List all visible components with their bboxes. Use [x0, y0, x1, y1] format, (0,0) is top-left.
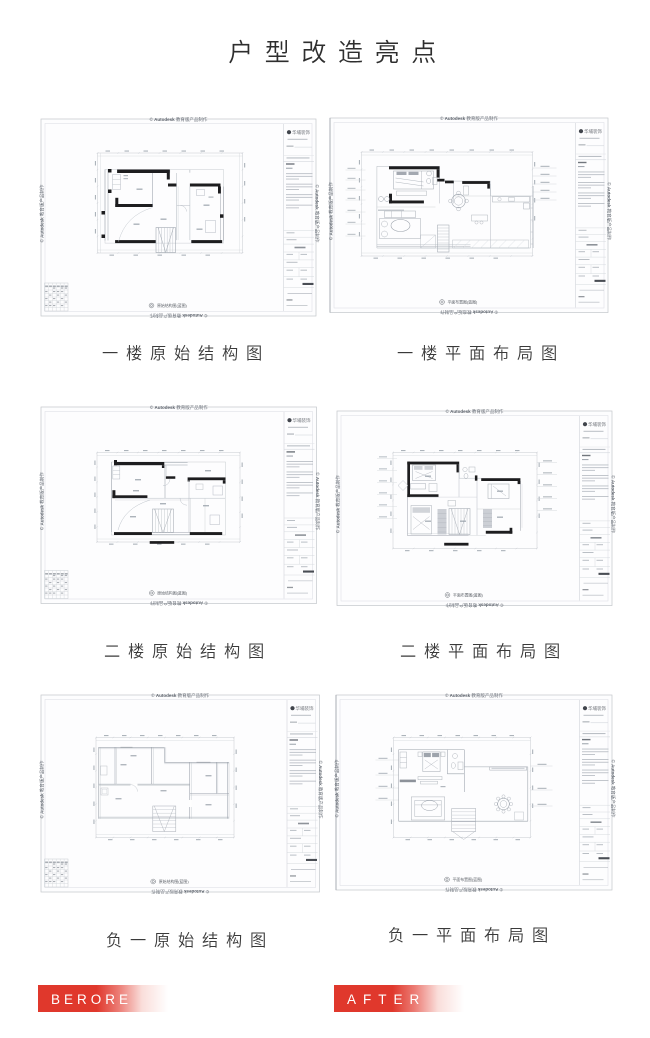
svg-text:© Autodesk 教育版产品制作: © Autodesk 教育版产品制作 [327, 182, 334, 240]
svg-text:© Autodesk 教育版产品制作: © Autodesk 教育版产品制作 [316, 761, 323, 819]
svg-text:华埔装饰: 华埔装饰 [584, 128, 602, 135]
svg-text:© Autodesk 教育版产品制作: © Autodesk 教育版产品制作 [440, 115, 498, 122]
svg-text:© Autodesk 教育版产品制作: © Autodesk 教育版产品制作 [38, 760, 45, 818]
svg-text:© Autodesk 教育版产品制作: © Autodesk 教育版产品制作 [150, 404, 208, 411]
svg-text:原始结构图(蓝图): 原始结构图(蓝图) [157, 590, 188, 596]
svg-text:© Autodesk 教育版产品制作: © Autodesk 教育版产品制作 [38, 184, 45, 242]
svg-text:平面布置图(蓝图): 平面布置图(蓝图) [453, 592, 484, 598]
svg-text:© Autodesk 教育版产品制作: © Autodesk 教育版产品制作 [609, 475, 616, 533]
svg-text:© Autodesk 教育版产品制作: © Autodesk 教育版产品制作 [151, 692, 209, 699]
svg-text:© Autodesk 教育版产品制作: © Autodesk 教育版产品制作 [313, 184, 320, 242]
svg-text:© Autodesk 教育版产品制作: © Autodesk 教育版产品制作 [335, 474, 342, 532]
svg-text:© Autodesk 教育版产品制作: © Autodesk 教育版产品制作 [609, 760, 616, 818]
svg-text:原始结构图(蓝图): 原始结构图(蓝图) [158, 879, 189, 885]
svg-text:© Autodesk 教育版产品制作: © Autodesk 教育版产品制作 [314, 472, 321, 530]
svg-text:平面布置图(蓝图): 平面布置图(蓝图) [447, 299, 478, 305]
svg-text:© Autodesk 教育版产品制作: © Autodesk 教育版产品制作 [333, 759, 340, 817]
svg-text:© Autodesk 教育版产品制作: © Autodesk 教育版产品制作 [445, 692, 503, 699]
svg-text:© Autodesk 教育版产品制作: © Autodesk 教育版产品制作 [445, 601, 503, 608]
svg-text:华埔装饰: 华埔装饰 [588, 705, 606, 712]
svg-text:华埔装饰: 华埔装饰 [292, 129, 310, 136]
svg-text:© Autodesk 教育版产品制作: © Autodesk 教育版产品制作 [605, 182, 612, 240]
svg-text:© Autodesk 教育版产品制作: © Autodesk 教育版产品制作 [39, 472, 46, 530]
svg-text:© Autodesk 教育版产品制作: © Autodesk 教育版产品制作 [149, 312, 207, 319]
svg-text:原始结构图(蓝图): 原始结构图(蓝图) [157, 302, 188, 308]
svg-text:平面布置图(蓝图): 平面布置图(蓝图) [452, 877, 483, 883]
svg-text:华埔装饰: 华埔装饰 [588, 421, 606, 428]
svg-text:© Autodesk 教育版产品制作: © Autodesk 教育版产品制作 [149, 600, 207, 607]
svg-text:© Autodesk 教育版产品制作: © Autodesk 教育版产品制作 [446, 408, 504, 415]
svg-text:© Autodesk 教育版产品制作: © Autodesk 教育版产品制作 [149, 116, 207, 123]
svg-text:© Autodesk 教育版产品制作: © Autodesk 教育版产品制作 [444, 886, 502, 893]
svg-text:华埔装饰: 华埔装饰 [293, 417, 311, 424]
svg-text:© Autodesk 教育版产品制作: © Autodesk 教育版产品制作 [439, 309, 497, 316]
svg-text:华埔装饰: 华埔装饰 [295, 705, 313, 712]
svg-text:© Autodesk 教育版产品制作: © Autodesk 教育版产品制作 [150, 888, 208, 895]
